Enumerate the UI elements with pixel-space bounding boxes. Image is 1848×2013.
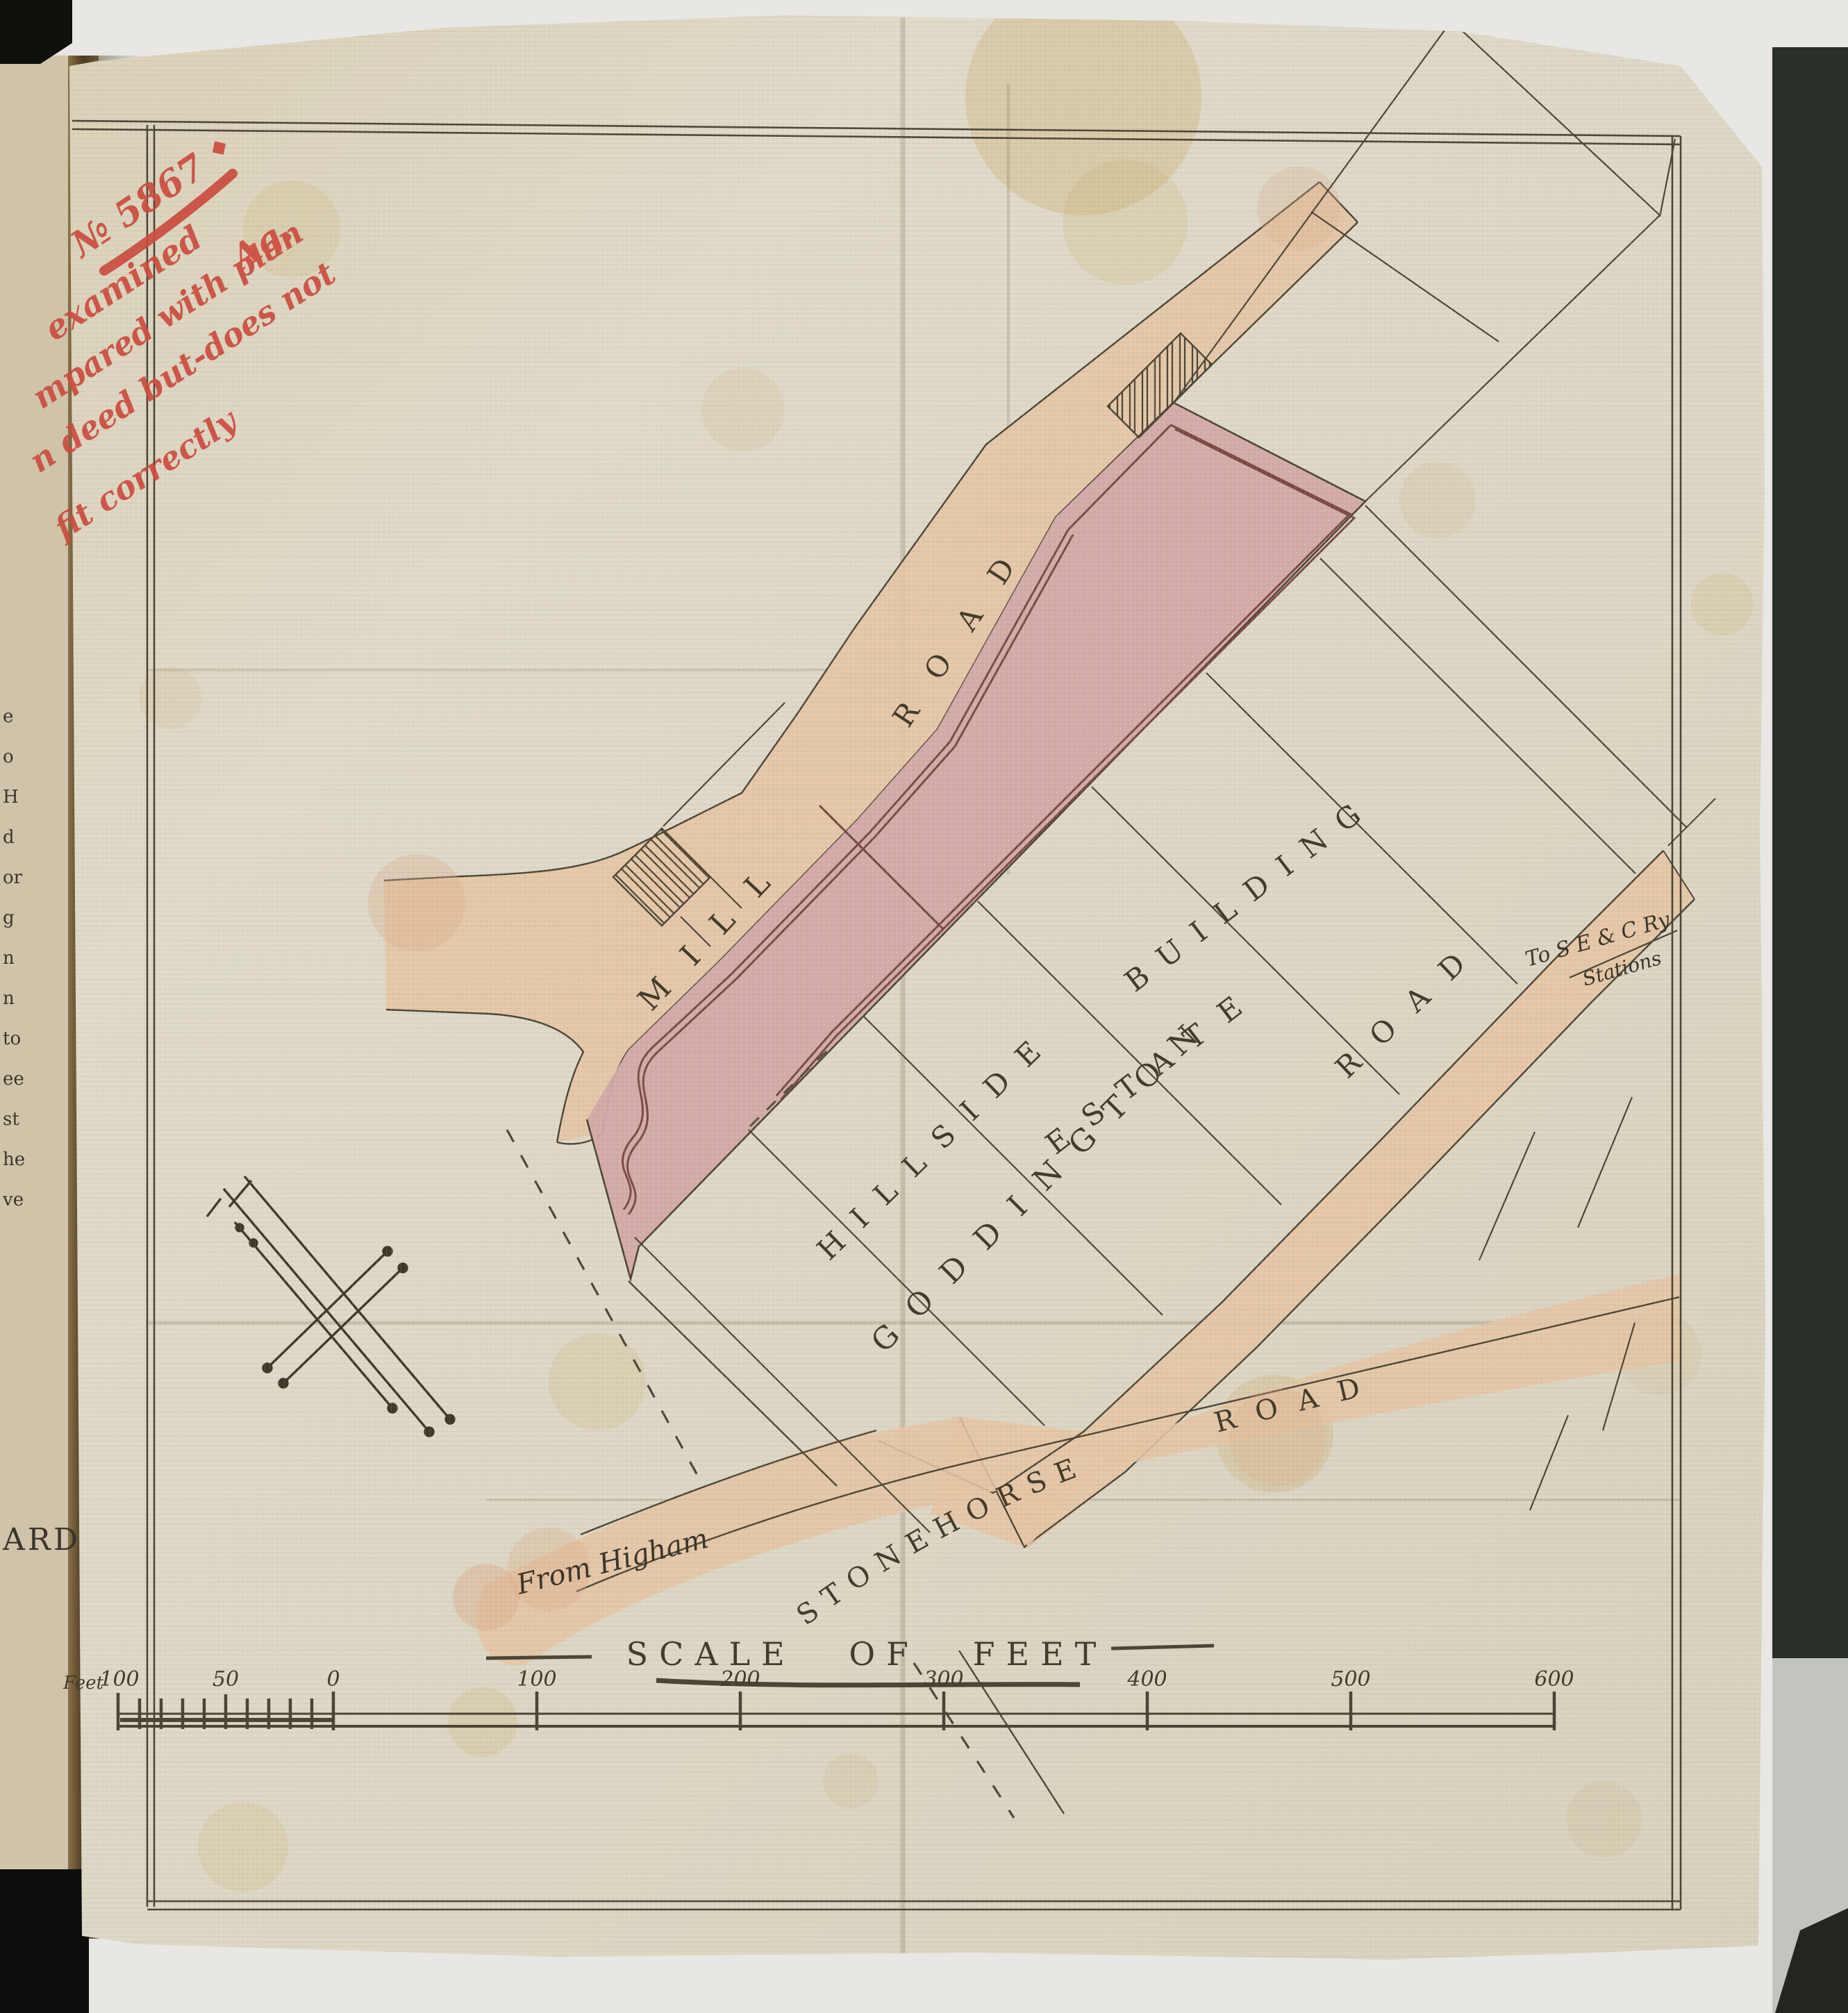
scale-unit-label: Feet xyxy=(63,1673,103,1694)
left-page-fragment: ee xyxy=(3,1069,24,1089)
book-cover-right xyxy=(1772,47,1848,1658)
scale-tick-label-4: 200 xyxy=(719,1667,760,1692)
left-page-fragment: H xyxy=(3,787,19,808)
scale-tick-label-0: 100 xyxy=(99,1667,139,1692)
scale-tick-label-2: 0 xyxy=(326,1667,340,1692)
left-page-word: ARD xyxy=(2,1522,81,1557)
left-page-fragment: e xyxy=(3,706,13,727)
scale-title-dash-left xyxy=(486,1657,592,1658)
black-corner-bottom-left xyxy=(0,1869,89,2013)
scale-tick-label-1: 50 xyxy=(213,1667,239,1692)
scale-tick-label-8: 600 xyxy=(1534,1667,1574,1692)
scanned-plan-page: e o H d or g n n to ee st he ve ARD xyxy=(0,0,1848,2013)
left-page-fragment: n xyxy=(3,948,15,969)
left-page-fragment: st xyxy=(3,1109,19,1130)
left-page-fragment: g xyxy=(3,908,15,928)
left-page-fragment: d xyxy=(3,827,15,848)
scale-tick-label-7: 500 xyxy=(1331,1667,1370,1692)
left-page-fragment: or xyxy=(3,867,23,888)
left-page-fragment: to xyxy=(3,1028,21,1049)
left-page-fragment: o xyxy=(3,746,14,767)
scale-tick-label-6: 400 xyxy=(1126,1667,1167,1692)
left-page-fragment: n xyxy=(3,988,15,1009)
left-page-fragment: he xyxy=(3,1149,25,1170)
scale-tick-label-5: 300 xyxy=(924,1667,963,1692)
scale-title: SCALE OF FEET xyxy=(626,1635,1108,1673)
left-page-fragment: ve xyxy=(2,1189,24,1210)
scale-tick-label-3: 100 xyxy=(517,1667,556,1692)
